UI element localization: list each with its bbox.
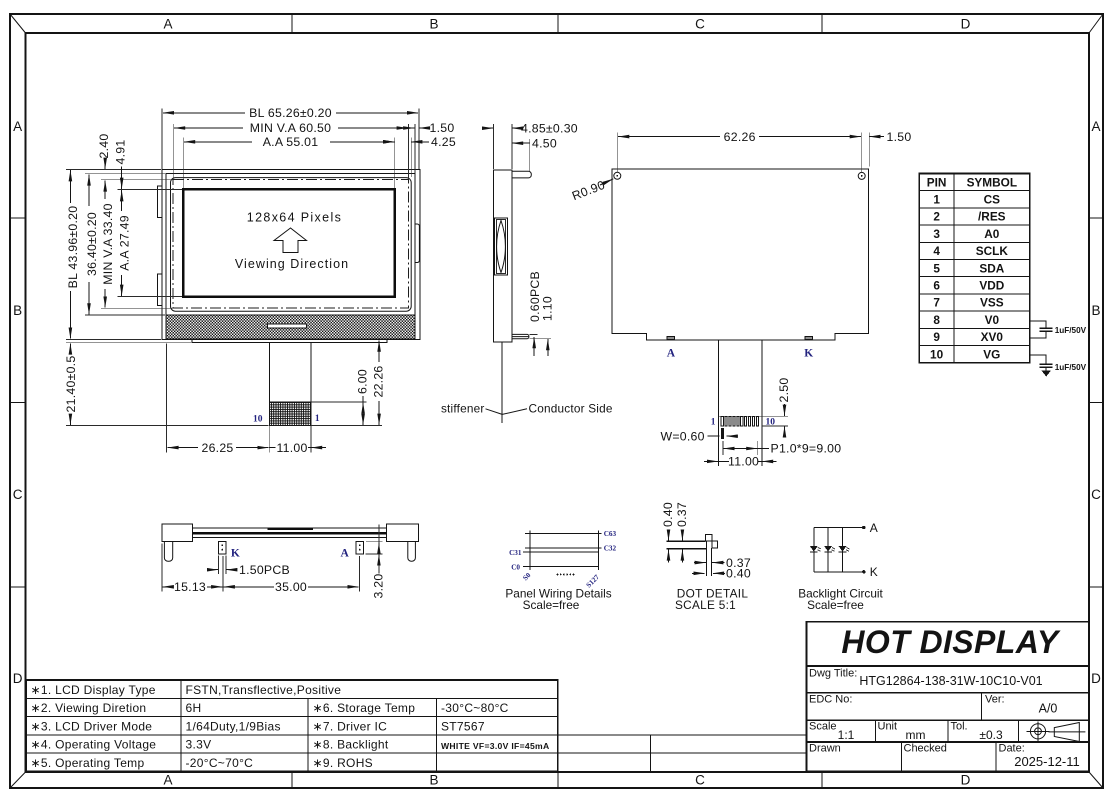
svg-text:SCLK: SCLK xyxy=(976,244,1009,258)
svg-text:A0: A0 xyxy=(984,227,1000,241)
svg-text:21.40±0.5: 21.40±0.5 xyxy=(64,356,78,413)
svg-text:C: C xyxy=(695,17,705,32)
svg-text:K: K xyxy=(870,565,878,579)
svg-text:C32: C32 xyxy=(604,545,617,553)
svg-text:C: C xyxy=(13,487,23,502)
svg-text:A: A xyxy=(163,773,172,788)
svg-text:1uF/50V: 1uF/50V xyxy=(1055,326,1087,335)
svg-text:D: D xyxy=(13,671,23,686)
svg-text:C0: C0 xyxy=(511,563,520,571)
svg-text:Checked: Checked xyxy=(904,743,947,755)
svg-text:VG: VG xyxy=(983,347,1000,361)
svg-text:2.50: 2.50 xyxy=(777,378,791,403)
svg-text:-20°C~70°C: -20°C~70°C xyxy=(186,756,254,770)
svg-text:mm: mm xyxy=(906,728,926,742)
svg-text:±0.3: ±0.3 xyxy=(979,728,1003,742)
svg-text:15.13: 15.13 xyxy=(174,580,206,594)
svg-text:stiffener: stiffener xyxy=(441,401,485,415)
svg-text:SCALE 5:1: SCALE 5:1 xyxy=(675,598,736,612)
svg-text:6H: 6H xyxy=(186,701,202,715)
svg-text:10: 10 xyxy=(253,414,263,424)
svg-text:10: 10 xyxy=(930,347,944,361)
svg-text:62.26: 62.26 xyxy=(724,130,756,144)
svg-text:1: 1 xyxy=(315,414,320,424)
svg-text:9: 9 xyxy=(933,330,940,344)
svg-text:∗3. LCD Driver Mode: ∗3. LCD Driver Mode xyxy=(31,719,153,733)
svg-text:Unit: Unit xyxy=(878,721,898,733)
svg-text:BL 65.26±0.20: BL 65.26±0.20 xyxy=(249,106,332,120)
svg-text:4.85±0.30: 4.85±0.30 xyxy=(521,121,578,135)
svg-text:∗9. ROHS: ∗9. ROHS xyxy=(313,756,373,770)
svg-text:∗7. Driver IC: ∗7. Driver IC xyxy=(313,719,388,733)
svg-text:Tol.: Tol. xyxy=(951,721,968,733)
svg-text:∗1. LCD Display Type: ∗1. LCD Display Type xyxy=(31,683,156,697)
svg-text:XV0: XV0 xyxy=(981,330,1004,344)
svg-text:D: D xyxy=(1091,671,1101,686)
svg-text:EDC No:: EDC No: xyxy=(809,694,852,706)
svg-text:35.00: 35.00 xyxy=(275,580,307,594)
svg-text:∗5. Operating Temp: ∗5. Operating Temp xyxy=(31,756,145,770)
svg-text:VSS: VSS xyxy=(980,296,1004,310)
svg-text:4: 4 xyxy=(933,244,940,258)
svg-text:A: A xyxy=(667,348,676,360)
svg-text:Drawn: Drawn xyxy=(809,743,841,755)
svg-text:ST7567: ST7567 xyxy=(441,719,485,733)
svg-text:WHITE VF=3.0V IF=45mA: WHITE VF=3.0V IF=45mA xyxy=(441,741,550,751)
svg-text:K: K xyxy=(231,547,240,559)
svg-text:C63: C63 xyxy=(604,530,617,538)
svg-text:6: 6 xyxy=(933,279,940,293)
svg-text:CS: CS xyxy=(984,193,1001,207)
svg-text:26.25: 26.25 xyxy=(201,441,233,455)
svg-text:3.3V: 3.3V xyxy=(186,738,212,752)
svg-text:1: 1 xyxy=(711,418,716,428)
svg-text:2.40: 2.40 xyxy=(97,134,111,159)
svg-text:A: A xyxy=(870,521,878,535)
svg-text:∗2. Viewing Diretion: ∗2. Viewing Diretion xyxy=(31,701,147,715)
svg-text:A.A 27.49: A.A 27.49 xyxy=(118,215,132,271)
svg-text:A/0: A/0 xyxy=(1039,701,1058,715)
svg-text:2: 2 xyxy=(933,210,940,224)
svg-text:0.40: 0.40 xyxy=(661,502,675,527)
svg-text:HTG12864-138-31W-10C10-V01: HTG12864-138-31W-10C10-V01 xyxy=(859,674,1042,688)
svg-text:Scale=free: Scale=free xyxy=(807,598,864,612)
svg-text:B: B xyxy=(429,17,438,32)
svg-text:11.00: 11.00 xyxy=(276,441,307,455)
svg-text:4.25: 4.25 xyxy=(431,135,456,149)
svg-text:1.50: 1.50 xyxy=(887,130,912,144)
svg-text:Conductor Side: Conductor Side xyxy=(529,401,613,415)
svg-text:MIN V.A 60.50: MIN V.A 60.50 xyxy=(250,121,331,135)
svg-text:7: 7 xyxy=(933,296,940,310)
svg-text:SDA: SDA xyxy=(979,261,1004,275)
svg-text:3.20: 3.20 xyxy=(371,574,385,599)
svg-text:A.A 55.01: A.A 55.01 xyxy=(263,135,319,149)
svg-text:8: 8 xyxy=(933,313,940,327)
svg-text:D: D xyxy=(961,773,971,788)
svg-text:5: 5 xyxy=(933,261,940,275)
svg-text:4.50: 4.50 xyxy=(532,136,557,150)
svg-text:128x64 Pixels: 128x64 Pixels xyxy=(247,211,342,225)
svg-text:A: A xyxy=(1091,119,1100,134)
svg-text:0.37: 0.37 xyxy=(675,502,689,527)
svg-text:B: B xyxy=(1091,303,1100,318)
svg-text:FSTN,Transflective,Positive: FSTN,Transflective,Positive xyxy=(186,683,342,697)
svg-text:1:1: 1:1 xyxy=(838,728,855,742)
svg-text:1.10: 1.10 xyxy=(540,296,554,321)
svg-text:PIN: PIN xyxy=(927,175,947,189)
svg-text:1/64Duty,1/9Bias: 1/64Duty,1/9Bias xyxy=(186,719,281,733)
svg-text:3: 3 xyxy=(933,227,940,241)
svg-text:0.40: 0.40 xyxy=(726,567,751,581)
svg-text:36.40±0.20: 36.40±0.20 xyxy=(85,212,99,276)
svg-text:V0: V0 xyxy=(985,313,1000,327)
svg-text:Dwg Title:: Dwg Title: xyxy=(809,667,857,679)
svg-text:K: K xyxy=(804,348,813,360)
svg-text:C: C xyxy=(1091,487,1101,502)
svg-text:MIN V.A 33.40: MIN V.A 33.40 xyxy=(101,203,115,284)
svg-text:W=0.60: W=0.60 xyxy=(661,430,705,444)
svg-text:1: 1 xyxy=(933,193,940,207)
svg-text:A: A xyxy=(340,547,349,559)
svg-text:SYMBOL: SYMBOL xyxy=(967,175,1017,189)
svg-text:∗6. Storage Temp: ∗6. Storage Temp xyxy=(313,701,416,715)
svg-text:A: A xyxy=(13,119,22,134)
svg-text:B: B xyxy=(13,303,22,318)
svg-text:C: C xyxy=(695,773,705,788)
svg-text:B: B xyxy=(429,773,438,788)
svg-text:HOT DISPLAY: HOT DISPLAY xyxy=(841,624,1060,660)
svg-text:1.50PCB: 1.50PCB xyxy=(239,563,290,577)
svg-text:Viewing Direction: Viewing Direction xyxy=(235,257,349,271)
svg-text:22.26: 22.26 xyxy=(372,365,386,397)
svg-text:-30°C~80°C: -30°C~80°C xyxy=(441,701,509,715)
svg-text:1.50: 1.50 xyxy=(430,121,455,135)
svg-text:D: D xyxy=(961,17,971,32)
svg-text:Scale: Scale xyxy=(809,721,837,733)
svg-text:C31: C31 xyxy=(509,549,522,557)
svg-text:P1.0*9=9.00: P1.0*9=9.00 xyxy=(771,442,842,456)
svg-text:1uF/50V: 1uF/50V xyxy=(1055,363,1087,372)
svg-text:6.00: 6.00 xyxy=(355,369,369,394)
svg-text:∗4. Operating Voltage: ∗4. Operating Voltage xyxy=(31,738,157,752)
svg-text:11.00: 11.00 xyxy=(728,455,759,469)
svg-text:VDD: VDD xyxy=(979,279,1004,293)
svg-text:Ver:: Ver: xyxy=(985,694,1005,706)
svg-text:4.91: 4.91 xyxy=(114,140,128,165)
svg-text:A: A xyxy=(163,17,172,32)
svg-text:/RES: /RES xyxy=(978,210,1006,224)
svg-text:Scale=free: Scale=free xyxy=(523,598,580,612)
svg-text:2025-12-11: 2025-12-11 xyxy=(1014,754,1080,769)
svg-text:∗8. Backlight: ∗8. Backlight xyxy=(313,738,389,752)
svg-text:BL 43.96±0.20: BL 43.96±0.20 xyxy=(66,206,80,289)
